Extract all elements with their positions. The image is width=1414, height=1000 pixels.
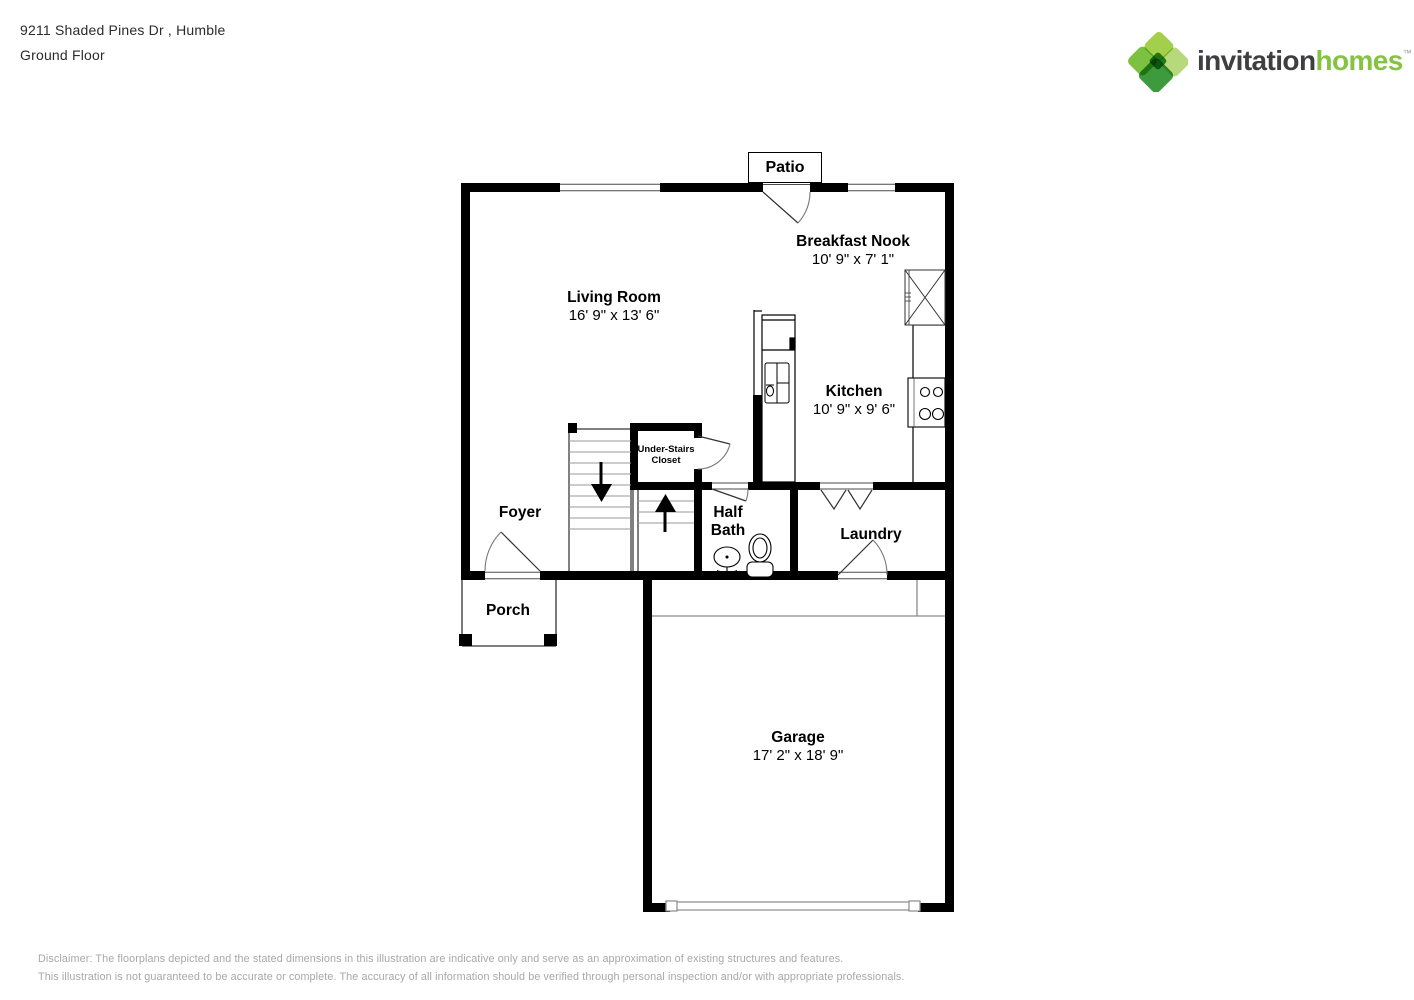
laundry-label: Laundry bbox=[821, 526, 921, 544]
refrigerator-handle-icon bbox=[790, 338, 795, 349]
porch-label: Porch bbox=[458, 602, 558, 620]
half-bath-door-swing bbox=[712, 489, 748, 501]
page: { "header": { "address": "9211 Shaded Pi… bbox=[0, 0, 1414, 1000]
stairs-up-arrow-icon bbox=[655, 494, 676, 532]
front-door-swing bbox=[485, 532, 540, 571]
bifold-door-icon bbox=[821, 490, 872, 509]
toilet-icon bbox=[747, 534, 773, 577]
pantry-icon bbox=[905, 270, 945, 325]
breakfast-nook-dimensions: 10' 9" x 7' 1" bbox=[753, 251, 953, 268]
breakfast-nook-label: Breakfast Nook bbox=[753, 233, 953, 251]
closet-door-swing bbox=[698, 436, 730, 469]
laundry-door-swing bbox=[838, 540, 887, 575]
garage-dimensions: 17' 2" x 18' 9" bbox=[698, 747, 898, 764]
kitchen-label: Kitchen bbox=[754, 383, 954, 401]
bathroom-fixtures bbox=[714, 534, 773, 577]
patio-door-swing bbox=[763, 192, 810, 223]
under-stairs-closet-label: Under-Stairs Closet bbox=[633, 444, 699, 466]
disclaimer-line-2: This illustration is not guaranteed to b… bbox=[38, 971, 905, 983]
bathroom-sink-icon bbox=[714, 547, 740, 575]
living-room-dimensions: 16' 9" x 13' 6" bbox=[514, 307, 714, 324]
disclaimer-line-1: Disclaimer: The floorplans depicted and … bbox=[38, 953, 843, 965]
floorplan-drawing bbox=[0, 0, 1414, 1000]
half-bath-label: Half Bath bbox=[699, 504, 757, 540]
porch-post-icon bbox=[459, 634, 472, 646]
kitchen-dimensions: 10' 9" x 9' 6" bbox=[754, 401, 954, 418]
kitchen-fixtures bbox=[754, 270, 945, 482]
foyer-label: Foyer bbox=[470, 504, 570, 522]
patio-label: Patio bbox=[748, 152, 822, 183]
porch-post-icon bbox=[544, 634, 557, 646]
garage-label: Garage bbox=[698, 729, 898, 747]
living-room-label: Living Room bbox=[514, 289, 714, 307]
garage-door-icon bbox=[666, 901, 920, 911]
